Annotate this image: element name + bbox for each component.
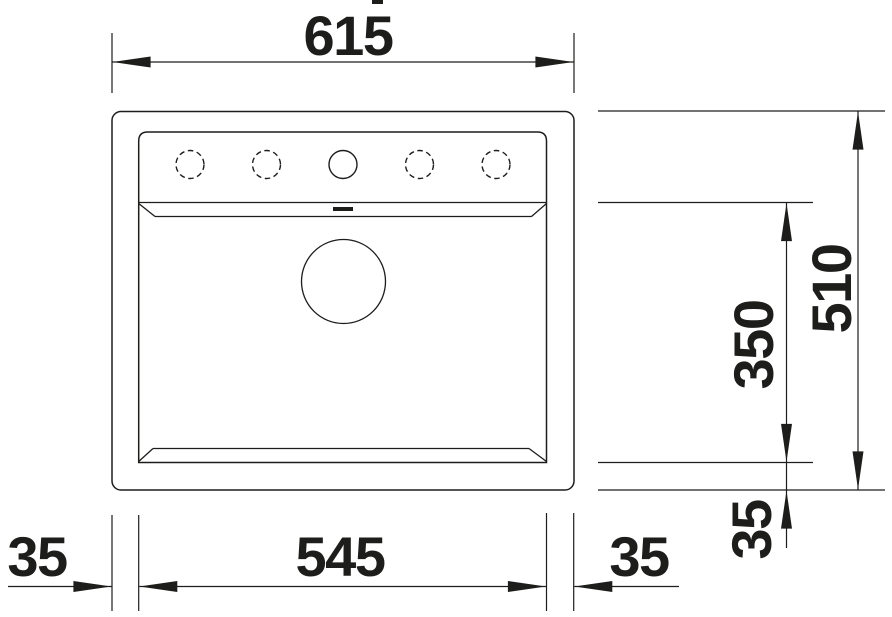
bowl-bevel-top-left	[139, 204, 155, 217]
dimension-overall-width: 615	[112, 4, 574, 93]
tap-hole-1-icon	[176, 151, 204, 179]
overflow-slot-icon	[333, 207, 353, 211]
dim-label-overall-depth: 510	[800, 245, 863, 334]
tap-hole-3-icon	[329, 151, 357, 179]
sink-technical-drawing: 615 510 350 35 35 545	[0, 0, 892, 617]
dim-label-overall-width: 615	[304, 4, 393, 67]
arrow-left-icon	[139, 581, 177, 592]
arrow-left-icon	[113, 57, 151, 68]
dim-label-bowl-width: 545	[296, 525, 385, 588]
drain-circle-icon	[302, 240, 386, 324]
bowl-bevel-bottom-left	[139, 449, 153, 462]
arrow-up-icon	[853, 112, 864, 150]
dim-label-rim-bottom: 35	[720, 500, 783, 560]
bowl-bevel-bottom-right	[529, 449, 547, 462]
bowl-rim-edge	[139, 132, 547, 463]
arrow-right-icon	[73, 581, 111, 592]
arrow-down-icon	[781, 424, 792, 462]
bowl-bevel-top-right	[532, 204, 547, 217]
arrow-left-icon	[574, 581, 612, 592]
tap-hole-5-icon	[482, 151, 510, 179]
arrow-right-icon	[535, 57, 573, 68]
sink-outer-edge	[112, 112, 574, 491]
dimension-rim-bottom: 35	[720, 463, 792, 560]
sink-plan-view	[112, 112, 574, 491]
tap-hole-2-icon	[253, 151, 281, 179]
arrow-up-icon	[781, 203, 792, 241]
dimension-overall-depth: 510	[598, 111, 885, 490]
dim-label-rim-left: 35	[7, 525, 67, 588]
drawing-canvas: 615 510 350 35 35 545	[0, 0, 892, 617]
arrow-right-icon	[508, 581, 546, 592]
dimension-bottom-group: 35 545 35	[7, 513, 679, 611]
tap-hole-4-icon	[406, 151, 434, 179]
dim-label-rim-right: 35	[609, 525, 669, 588]
dim-label-bowl-depth: 350	[722, 301, 785, 390]
arrow-down-icon	[853, 451, 864, 489]
dimension-bowl-depth: 350	[598, 203, 813, 463]
